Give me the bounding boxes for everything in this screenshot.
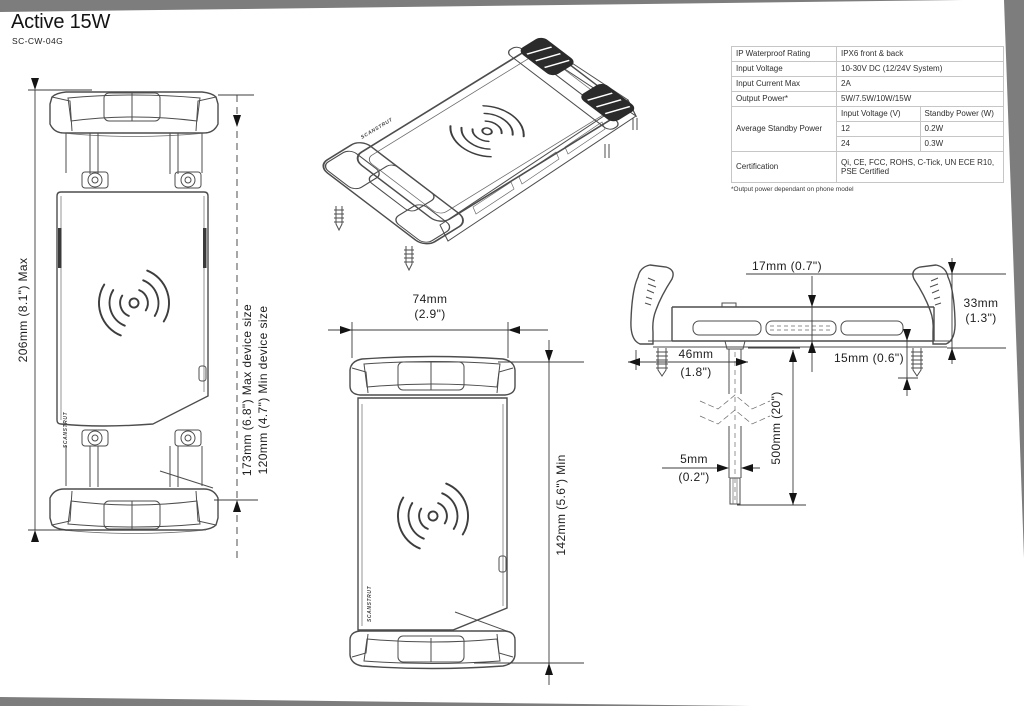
dim-overall-length-label: 206mm (8.1") Max	[16, 258, 30, 363]
technical-drawings: SCANSTRUT 206mm (8.1") Max	[0, 0, 1024, 706]
brand-logo: SCANSTRUT	[360, 117, 394, 141]
dim-min-length-label: 142mm (5.6") Min	[554, 454, 568, 555]
dim-height-mm-label: 33mm	[964, 296, 999, 310]
plan-view-drawing: SCANSTRUT 206mm (8.1") Max	[16, 78, 270, 558]
spec-sheet-page: Active 15W SC-CW-04G IP Waterproof Ratin…	[0, 0, 1024, 706]
dim-max-device-label: 173mm (6.8") Max device size	[240, 304, 254, 476]
side-view-drawing: 17mm (0.7") 33mm (1.3") 15mm (0.6") 46mm…	[628, 258, 1006, 505]
dim-offset-mm-label: 46mm	[679, 347, 714, 361]
dim-cable-d-mm-label: 5mm	[680, 452, 708, 466]
brand-logo: SCANSTRUT	[367, 585, 373, 622]
dim-min-device-label: 120mm (4.7") Min device size	[256, 306, 270, 475]
isometric-view-drawing: SCANSTRUT	[318, 31, 644, 270]
dim-width-in-label: (2.9")	[414, 307, 445, 321]
dim-cable-len-label: 500mm (20")	[769, 391, 783, 464]
dim-height-in-label: (1.3")	[965, 311, 996, 325]
front-view-drawing: SCANSTRUT 74mm (2.9") 142mm (5.6") Min	[328, 292, 584, 685]
dim-offset-in-label: (1.8")	[680, 365, 711, 379]
brand-logo: SCANSTRUT	[63, 411, 69, 448]
dim-lip-depth-label: 17mm (0.7")	[752, 259, 822, 273]
dim-width-mm-label: 74mm	[413, 292, 448, 306]
dim-cable-d-in-label: (0.2")	[678, 470, 709, 484]
dim-screw-label: 15mm (0.6")	[834, 351, 904, 365]
grip-pad	[578, 82, 638, 124]
